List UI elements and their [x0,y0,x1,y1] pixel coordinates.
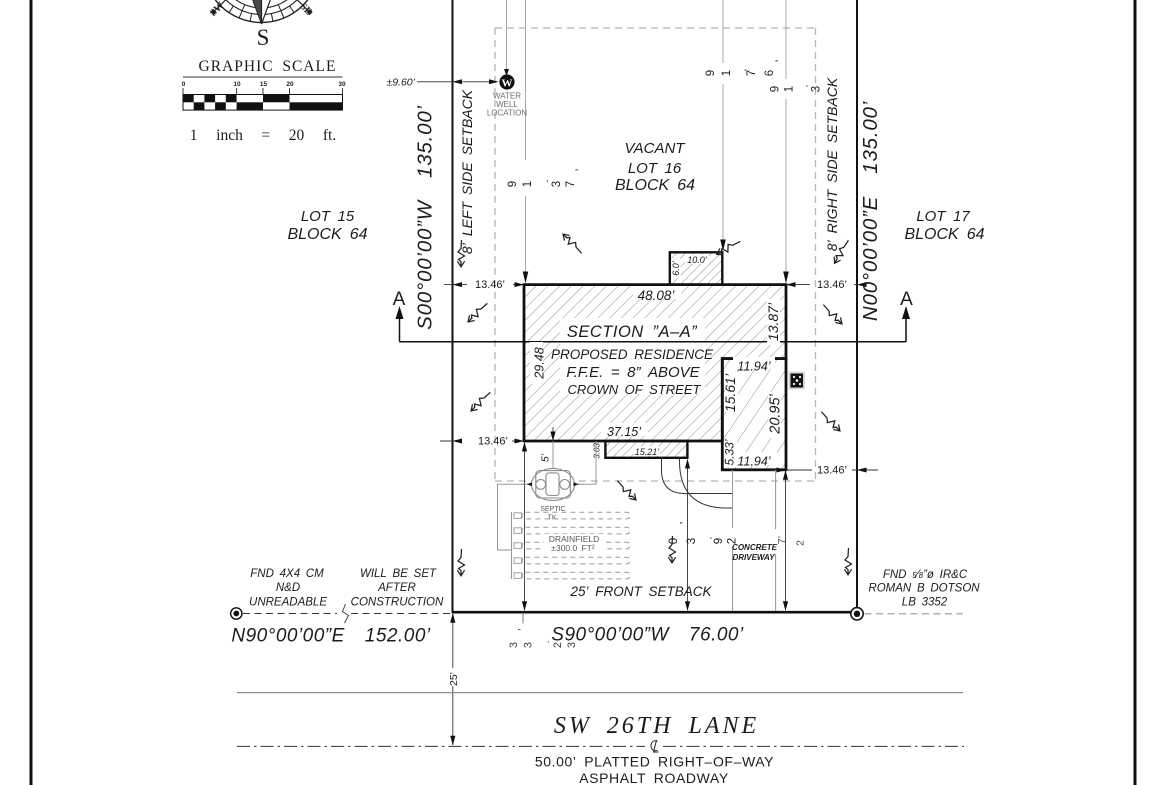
svg-text:SW 26TH LANE: SW 26TH LANE [554,713,759,739]
svg-text:13.46’: 13.46’ [475,279,505,291]
svg-text:3: 3 [508,642,520,648]
svg-text:7: 7 [565,181,577,187]
svg-text:CONSTRUCTION: CONSTRUCTION [351,597,444,609]
svg-text:’: ’ [775,60,787,63]
svg-text:FND 5⁄8”ø IR&C: FND 5⁄8”ø IR&C [883,569,968,581]
svg-text:3: 3 [811,86,823,92]
svg-text:GRAPHIC SCALE: GRAPHIC SCALE [199,58,337,75]
svg-text:13.46’: 13.46’ [817,465,847,477]
svg-text:S90°00’00”W 76.00’: S90°00’00”W 76.00’ [551,625,744,646]
svg-text:CONCRETE: CONCRETE [732,543,778,552]
svg-text:LOT 17: LOT 17 [916,208,970,225]
svg-text:BLOCK 64: BLOCK 64 [615,177,695,194]
svg-text:48.08’: 48.08’ [638,288,676,303]
svg-text:1: 1 [522,181,534,187]
svg-text:LOCATION: LOCATION [487,109,528,118]
svg-text:ROMAN B DOTSON: ROMAN B DOTSON [868,583,980,595]
svg-text:11.94’: 11.94’ [737,455,770,469]
svg-text:CROWN OF STREET: CROWN OF STREET [568,382,702,397]
svg-text:N00°00’00”E 135.00’: N00°00’00”E 135.00’ [859,101,882,321]
svg-text:DRIVEWAY: DRIVEWAY [732,553,775,562]
svg-text:3: 3 [551,181,563,187]
svg-text:20.95’: 20.95’ [768,393,784,434]
svg-text:SECTION ”A–A”: SECTION ”A–A” [567,323,698,341]
svg-text:9: 9 [705,70,717,76]
svg-text:LB 3352: LB 3352 [902,597,948,609]
svg-text:A: A [900,289,913,310]
svg-text:’: ’ [575,169,587,172]
svg-text:10.0’: 10.0’ [687,255,708,265]
svg-text:15.21’: 15.21’ [635,447,661,457]
svg-text:9: 9 [507,181,519,187]
svg-text:6: 6 [764,70,776,76]
svg-text:15: 15 [260,81,268,88]
svg-text:±9.60’: ±9.60’ [386,77,415,89]
svg-text:N90°00’00”E 152.00’: N90°00’00”E 152.00’ [231,626,431,647]
svg-text:1: 1 [721,70,733,76]
svg-text:BLOCK 64: BLOCK 64 [287,226,367,243]
svg-text:.: . [539,179,551,182]
svg-text:3: 3 [566,642,578,648]
svg-text:PROPOSED RESIDENCE: PROPOSED RESIDENCE [551,347,714,362]
svg-text:9: 9 [713,538,725,544]
svg-text:ASPHALT ROADWAY: ASPHALT ROADWAY [579,770,729,785]
svg-text:8’ RIGHT SIDE SETBACK: 8’ RIGHT SIDE SETBACK [824,77,840,251]
svg-text:3: 3 [686,538,698,544]
svg-text:13.87’: 13.87’ [765,302,781,341]
svg-text:LOT 16: LOT 16 [628,160,682,177]
svg-text:15.61’: 15.61’ [722,373,738,412]
svg-text:10: 10 [233,81,241,88]
svg-text:6.0’: 6.0’ [671,260,681,276]
svg-text:7’: 7’ [776,536,788,544]
svg-text:A: A [393,289,406,310]
svg-text:.: . [540,640,552,643]
svg-text:SW: SW [208,0,227,19]
svg-text:3: 3 [523,642,535,648]
svg-text:3.03’: 3.03’ [593,441,602,459]
svg-text:0: 0 [182,81,186,88]
svg-text:UNREADABLE: UNREADABLE [249,597,327,609]
svg-text:5.33’: 5.33’ [723,439,737,465]
svg-text:2: 2 [795,540,807,546]
svg-text:WILL BE SET: WILL BE SET [360,568,437,580]
svg-text:11.94’: 11.94’ [737,360,770,374]
svg-text:VACANT: VACANT [624,140,686,157]
svg-text:LOT 15: LOT 15 [301,208,355,225]
svg-text:AFTER: AFTER [377,582,416,594]
svg-text:1 inch = 20 ft.: 1 inch = 20 ft. [190,127,336,144]
svg-text:’: ’ [517,628,529,630]
svg-text:BLOCK 64: BLOCK 64 [904,226,984,243]
svg-text:2: 2 [727,538,739,544]
svg-text:SE: SE [297,1,314,18]
svg-text:F.F.E. = 8” ABOVE: F.F.E. = 8” ABOVE [566,364,700,381]
svg-text:S: S [257,25,270,50]
svg-text:25’: 25’ [448,672,460,686]
svg-text:29.48: 29.48 [533,347,547,379]
svg-text:FND 4X4 CM: FND 4X4 CM [250,568,324,580]
svg-text:S00°00’00”W 135.00’: S00°00’00”W 135.00’ [414,105,437,330]
svg-text:9: 9 [770,86,782,92]
svg-text:N&D: N&D [276,582,300,594]
svg-text:5’: 5’ [540,453,552,462]
svg-text:.: . [799,84,811,87]
svg-text:W: W [502,78,513,90]
svg-text:13.46’: 13.46’ [817,279,847,291]
svg-text:20: 20 [286,81,294,88]
svg-text:50.00’ PLATTED RIGHT–OF–WAY: 50.00’ PLATTED RIGHT–OF–WAY [535,754,774,770]
svg-text:37.15’: 37.15’ [607,425,641,439]
svg-text:0: 0 [668,538,680,544]
svg-text:TK.: TK. [548,515,559,522]
svg-text:1: 1 [784,86,796,92]
svg-text:8’ LEFT SIDE SETBACK: 8’ LEFT SIDE SETBACK [459,89,475,254]
svg-text:2: 2 [552,642,564,648]
svg-text:7: 7 [746,70,758,76]
svg-text:30: 30 [338,81,346,88]
svg-text:’: ’ [680,522,692,525]
svg-text:25’ FRONT SETBACK: 25’ FRONT SETBACK [569,584,712,599]
svg-text:13.46’: 13.46’ [478,436,508,448]
svg-text:±300.0 FT²: ±300.0 FT² [551,543,595,553]
